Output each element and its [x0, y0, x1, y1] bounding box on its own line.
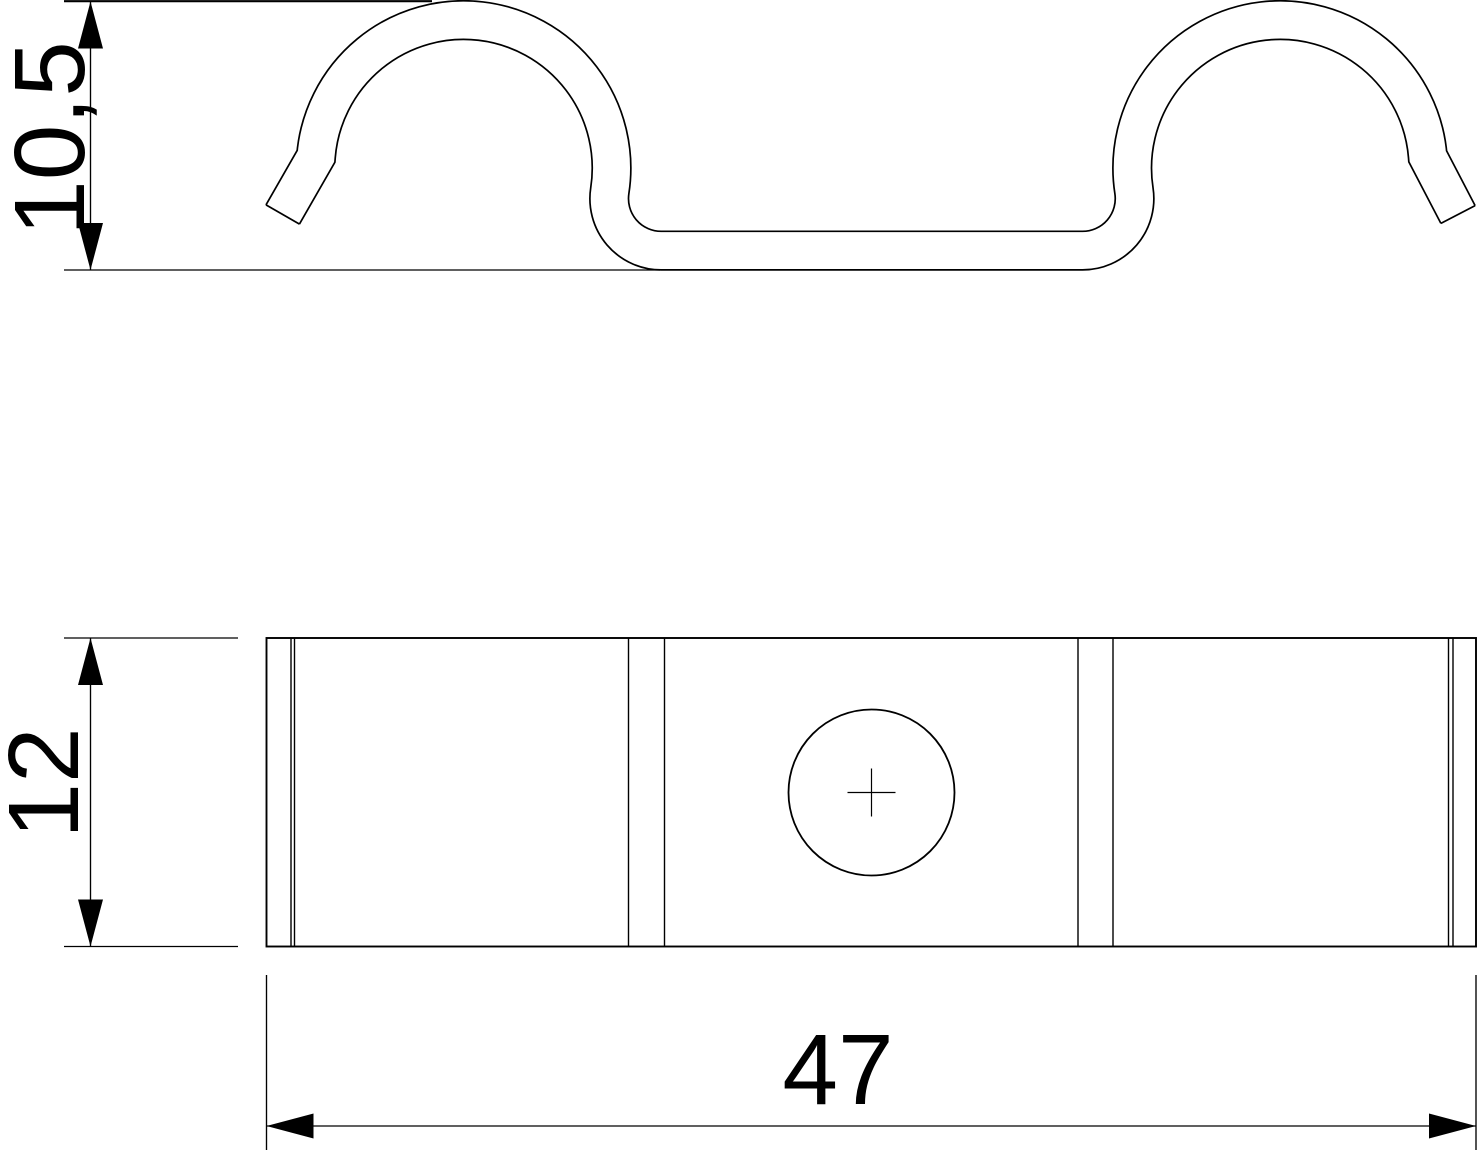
svg-text:10,5: 10,5 — [0, 41, 106, 236]
svg-text:47: 47 — [782, 1014, 893, 1126]
svg-text:12: 12 — [0, 727, 100, 838]
